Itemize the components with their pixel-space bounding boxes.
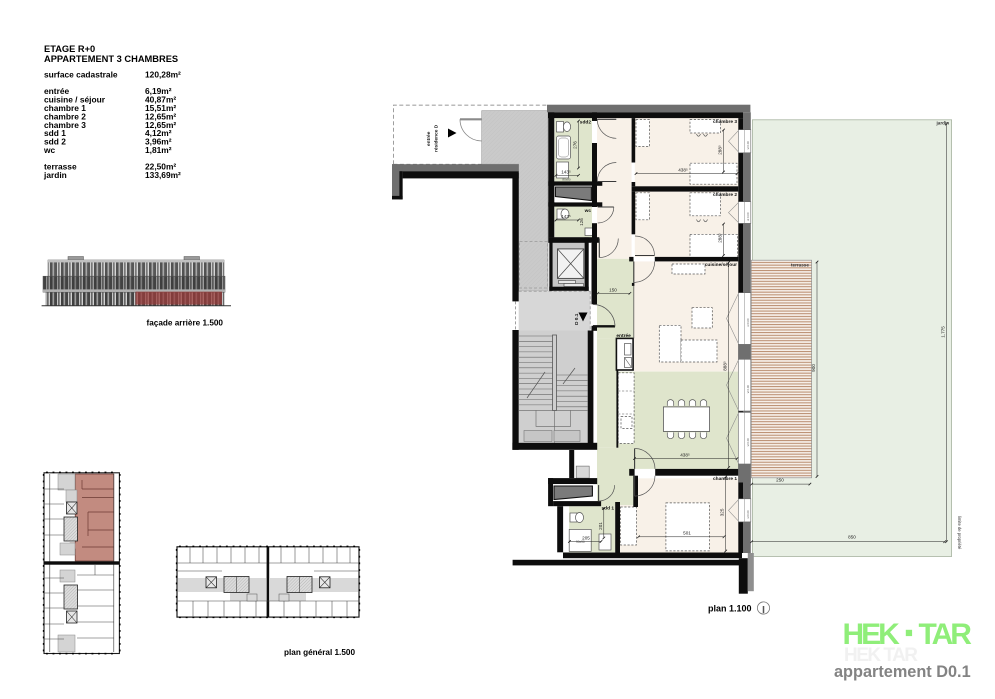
svg-text:chambre 2: chambre 2 — [713, 192, 737, 198]
svg-text:HEK: HEK — [843, 618, 901, 651]
svg-text:80x80: 80x80 — [562, 178, 571, 182]
svg-text:850: 850 — [848, 535, 856, 540]
svg-text:cuisine/séjour: cuisine/séjour — [705, 262, 737, 268]
svg-text:205: 205 — [582, 536, 590, 541]
svg-text:vl 0.00: vl 0.00 — [746, 318, 750, 327]
svg-text:143⁵: 143⁵ — [561, 214, 571, 219]
svg-text:entrée: entrée — [616, 333, 631, 339]
svg-text:1.775: 1.775 — [941, 326, 946, 338]
svg-text:jardin: jardin — [43, 170, 67, 180]
svg-text:APPARTEMENT 3 CHAMBRES: APPARTEMENT 3 CHAMBRES — [44, 54, 178, 64]
svg-text:résidence D: résidence D — [434, 124, 440, 152]
svg-text:vl 0.00: vl 0.00 — [746, 212, 750, 221]
svg-text:sdd 1: sdd 1 — [601, 506, 614, 512]
svg-text:appartement D0.1: appartement D0.1 — [834, 663, 971, 681]
svg-text:900: 900 — [811, 364, 816, 372]
svg-text:288⁵: 288⁵ — [718, 233, 723, 243]
svg-text:entrée: entrée — [426, 131, 432, 146]
svg-text:1,81m²: 1,81m² — [145, 145, 172, 155]
svg-text:wc: wc — [43, 145, 56, 155]
svg-text:250: 250 — [776, 478, 784, 483]
svg-text:plan 1.100: plan 1.100 — [708, 604, 752, 614]
svg-text:surface cadastrale: surface cadastrale — [44, 70, 118, 80]
svg-text:438⁵: 438⁵ — [678, 168, 688, 173]
svg-text:ETAGE R+0: ETAGE R+0 — [44, 44, 95, 54]
svg-text:vl 0.00: vl 0.00 — [746, 438, 750, 447]
svg-text:chambre 3: chambre 3 — [713, 119, 737, 125]
svg-text:501: 501 — [683, 531, 691, 536]
svg-text:façade arrière 1.500: façade arrière 1.500 — [147, 319, 224, 328]
svg-text:438⁵: 438⁵ — [680, 452, 690, 457]
svg-text:vl 0.00: vl 0.00 — [746, 385, 750, 394]
svg-text:143⁵: 143⁵ — [561, 169, 571, 174]
svg-text:126: 126 — [579, 218, 584, 226]
svg-text:888⁵: 888⁵ — [723, 361, 728, 371]
svg-text:TAR: TAR — [919, 618, 973, 651]
svg-text:vl 0.00: vl 0.00 — [746, 141, 750, 150]
svg-text:276: 276 — [573, 141, 578, 149]
svg-text:288⁵: 288⁵ — [718, 145, 723, 155]
svg-text:vl 0.00: vl 0.00 — [746, 510, 750, 519]
svg-text:terrasse: terrasse — [791, 263, 809, 268]
svg-text:limite de propriété: limite de propriété — [957, 516, 962, 550]
svg-text:325: 325 — [720, 508, 725, 516]
svg-text:wc: wc — [584, 209, 592, 214]
svg-text:D 0.1: D 0.1 — [574, 313, 580, 325]
svg-text:sdd2: sdd2 — [580, 120, 592, 126]
svg-text:120,28m²: 120,28m² — [145, 70, 181, 80]
svg-text:plan général 1.500: plan général 1.500 — [284, 648, 355, 657]
svg-text:chambre 1: chambre 1 — [713, 476, 737, 482]
svg-text:133,69m²: 133,69m² — [145, 170, 181, 180]
svg-text:201: 201 — [598, 522, 603, 530]
svg-text:150: 150 — [609, 287, 617, 292]
